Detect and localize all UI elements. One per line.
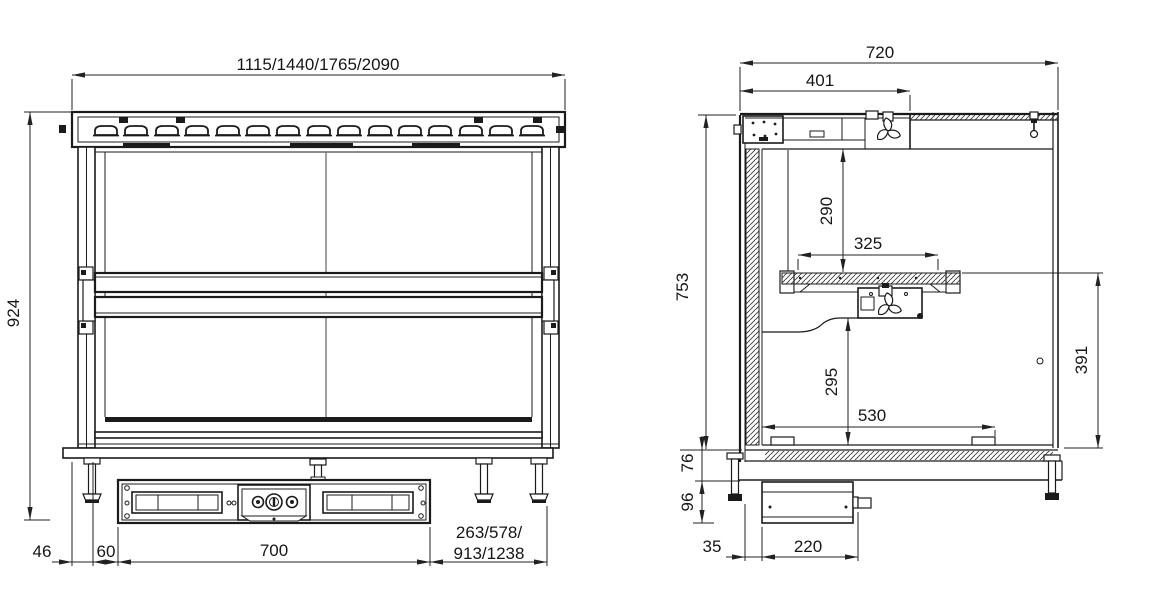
door-track [290, 143, 353, 147]
foot [1044, 455, 1060, 500]
foot [475, 458, 493, 503]
control-panel [118, 480, 430, 523]
technical-drawing-page: 1115/1440/1765/2090 924 46 60 700 [0, 0, 1164, 614]
dim-label-overall-width: 1115/1440/1765/2090 [237, 55, 400, 74]
louver-strip [93, 126, 545, 136]
dim-label-shelf-to-floor: 391 [1072, 346, 1091, 374]
top-frame [59, 112, 565, 147]
dim-floor-depth: 530 [762, 406, 995, 436]
front-view: 1115/1440/1765/2090 924 46 60 700 [4, 55, 565, 566]
dim-cooling-unit-depth: 401 [740, 71, 910, 111]
hanger-bolt-icon [1030, 112, 1038, 138]
drain-outlet [858, 498, 871, 508]
dim-label-side-height: 753 [673, 273, 692, 301]
door-track [412, 143, 460, 147]
fan-icon-top [875, 118, 901, 141]
knob-left[interactable] [253, 497, 264, 508]
dim-label-wall-to-compressor: 35 [703, 537, 722, 556]
dim-ceiling-to-shelf: 290 [817, 149, 846, 272]
dim-flange-and-compressor-heights: 76 96 [678, 436, 740, 523]
bumper-rail [79, 267, 558, 334]
dim-label-right-variants-2: 913/1238 [454, 544, 525, 563]
dim-label-right-variants-1: 263/578/ [456, 523, 522, 542]
dim-shelf-depth: 325 [798, 234, 938, 270]
drawing-canvas: 1115/1440/1765/2090 924 46 60 700 [0, 0, 1164, 614]
screw-hole [1037, 358, 1043, 364]
dim-label-cutout-width: 700 [260, 541, 288, 560]
dim-duct-to-floor: 295 [822, 318, 851, 445]
dim-label-compressor-depth: 220 [794, 537, 822, 556]
dim-label-inset: 60 [97, 542, 116, 561]
bottom-lip [63, 448, 553, 458]
shelf-support-block [972, 437, 995, 445]
dim-label-flange-height: 76 [678, 454, 697, 473]
control-box [238, 485, 310, 521]
side-view: 720 401 753 290 325 [673, 43, 1103, 561]
dim-label-shelf-depth: 325 [854, 234, 882, 253]
dim-label-duct-to-floor: 295 [822, 368, 841, 396]
dim-label-overall-height: 924 [4, 299, 23, 327]
glass-front [1053, 112, 1058, 448]
dim-label-overall-depth: 720 [866, 43, 894, 62]
compressor-box [762, 482, 871, 523]
door-track [123, 143, 170, 147]
shelf-support-block [771, 437, 794, 445]
thermostat-knob[interactable] [266, 494, 282, 510]
dim-overall-depth: 720 [740, 43, 1058, 111]
knob-right[interactable] [287, 497, 298, 508]
vent-grille-left [132, 492, 222, 513]
foot [83, 458, 101, 503]
dim-label-ceiling-to-shelf: 290 [817, 197, 836, 225]
frame-tab-right [556, 126, 564, 133]
dim-label-cooling-unit-depth: 401 [806, 71, 834, 90]
vent-grille-right [323, 492, 413, 513]
dim-label-compressor-height: 96 [678, 493, 697, 512]
foot [530, 458, 548, 503]
base-floor [738, 358, 1062, 480]
dim-shelf-to-floor: 391 [962, 273, 1103, 448]
dim-label-floor-depth: 530 [858, 406, 886, 425]
top-cooling-unit [734, 111, 1058, 149]
dim-overall-width: 1115/1440/1765/2090 [72, 55, 565, 110]
frame-tab-left [59, 125, 66, 133]
air-duct-curve [762, 318, 858, 332]
dim-label-edge-offset: 46 [33, 542, 52, 561]
dim-side-height: 753 [673, 115, 742, 450]
